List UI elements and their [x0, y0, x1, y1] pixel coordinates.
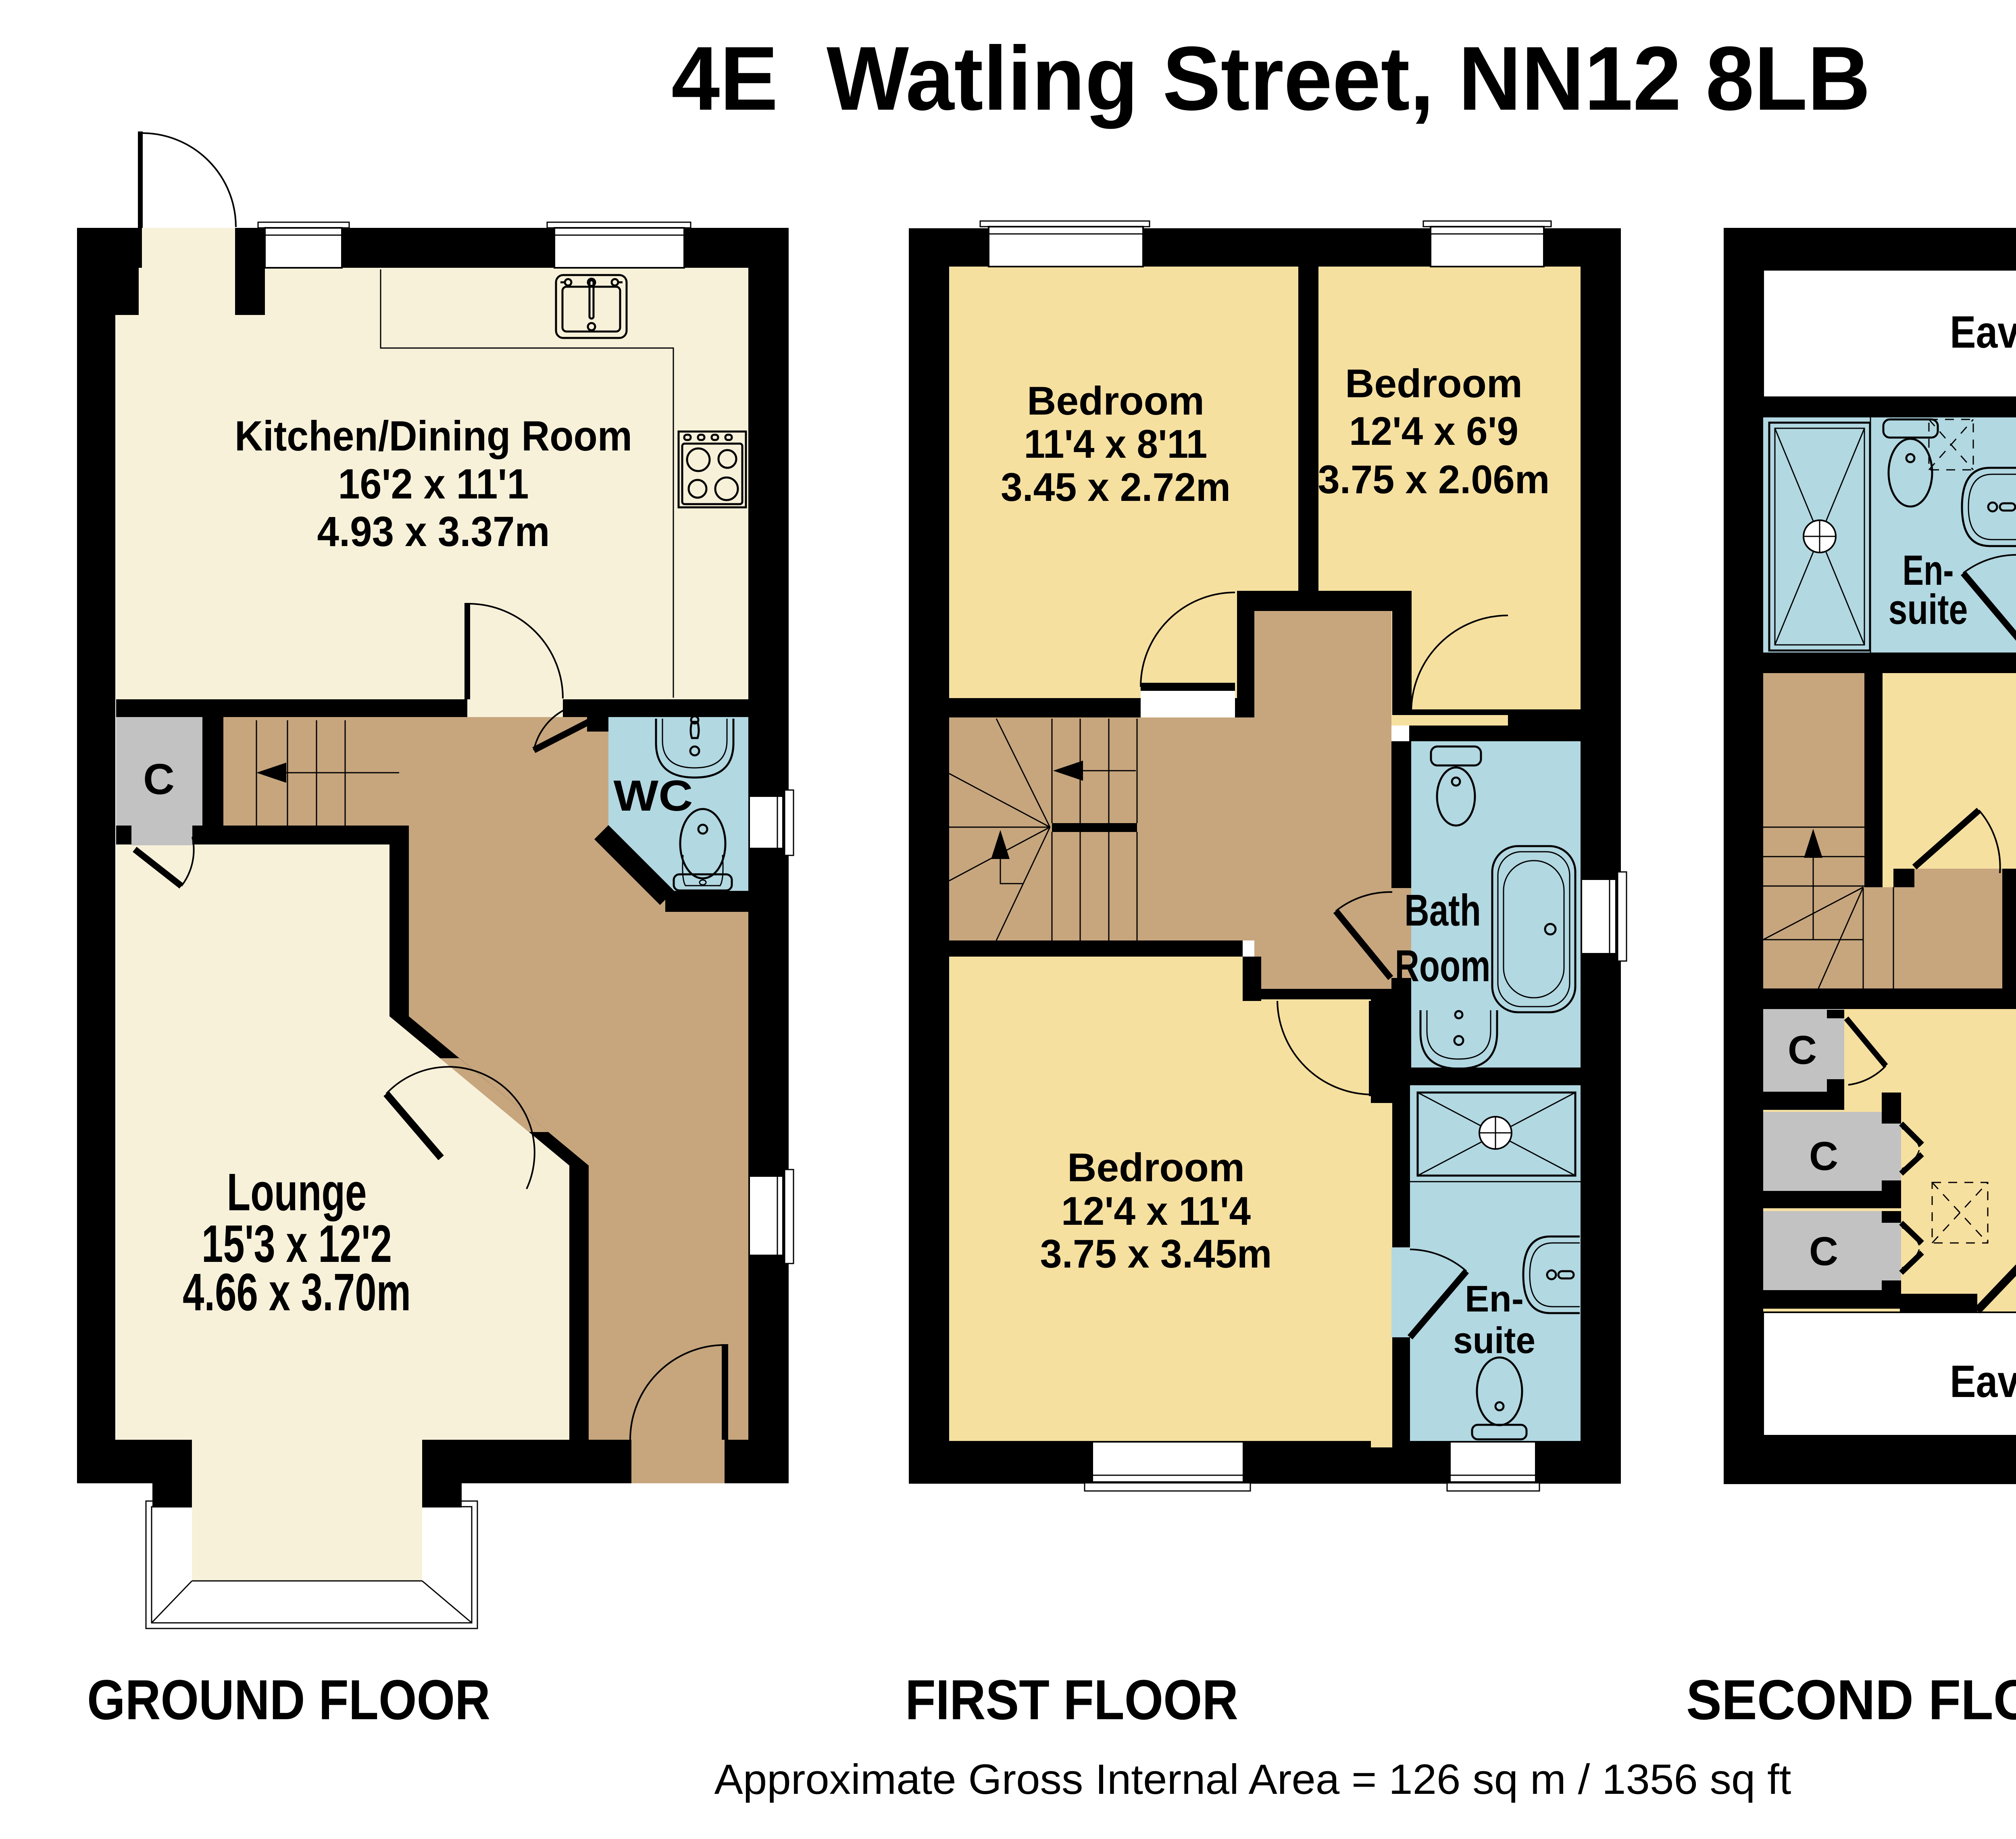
svg-text:Approximate Gross Internal Are: Approximate Gross Internal Area = 126 sq…	[714, 1756, 1791, 1803]
svg-text:4E Watling Street, NN12 8LB: 4E Watling Street, NN12 8LB	[671, 27, 1870, 129]
svg-text:En-: En-	[1465, 1278, 1524, 1320]
svg-text:Bedroom: Bedroom	[1027, 378, 1204, 423]
svg-text:Lounge: Lounge	[227, 1162, 367, 1222]
svg-text:4.93 x 3.37m: 4.93 x 3.37m	[317, 508, 550, 555]
svg-text:12'4 x 11'4: 12'4 x 11'4	[1061, 1188, 1251, 1233]
svg-text:GROUND FLOOR: GROUND FLOOR	[87, 1668, 490, 1731]
svg-text:suite: suite	[1453, 1320, 1535, 1361]
svg-text:Room: Room	[1395, 941, 1491, 991]
svg-text:16'2 x 11'1: 16'2 x 11'1	[338, 461, 529, 508]
svg-text:Kitchen/Dining Room: Kitchen/Dining Room	[235, 413, 632, 460]
svg-text:SECOND FLOOR: SECOND FLOOR	[1686, 1668, 2016, 1731]
svg-text:suite: suite	[1889, 586, 1968, 633]
svg-text:FIRST FLOOR: FIRST FLOOR	[905, 1668, 1238, 1731]
svg-text:Eaves Store: Eaves Store	[1950, 307, 2016, 357]
svg-text:Eaves Store: Eaves Store	[1950, 1356, 2016, 1407]
svg-text:3.75 x 3.45m: 3.75 x 3.45m	[1040, 1231, 1272, 1276]
svg-text:11'4 x 8'11: 11'4 x 8'11	[1024, 421, 1208, 466]
svg-text:C: C	[143, 755, 175, 803]
svg-text:WC: WC	[614, 771, 693, 820]
svg-text:3.45 x 2.72m: 3.45 x 2.72m	[1001, 465, 1231, 509]
svg-text:3.75 x 2.06m: 3.75 x 2.06m	[1318, 457, 1550, 502]
svg-text:4.66 x 3.70m: 4.66 x 3.70m	[183, 1262, 411, 1322]
svg-text:C: C	[1809, 1134, 1838, 1179]
svg-text:Bath: Bath	[1404, 886, 1481, 935]
svg-text:Bedroom: Bedroom	[1345, 361, 1522, 406]
svg-text:Bedroom: Bedroom	[1067, 1145, 1245, 1190]
svg-text:C: C	[1809, 1229, 1838, 1274]
svg-text:C: C	[1788, 1028, 1817, 1073]
svg-text:12'4 x 6'9: 12'4 x 6'9	[1349, 409, 1518, 453]
